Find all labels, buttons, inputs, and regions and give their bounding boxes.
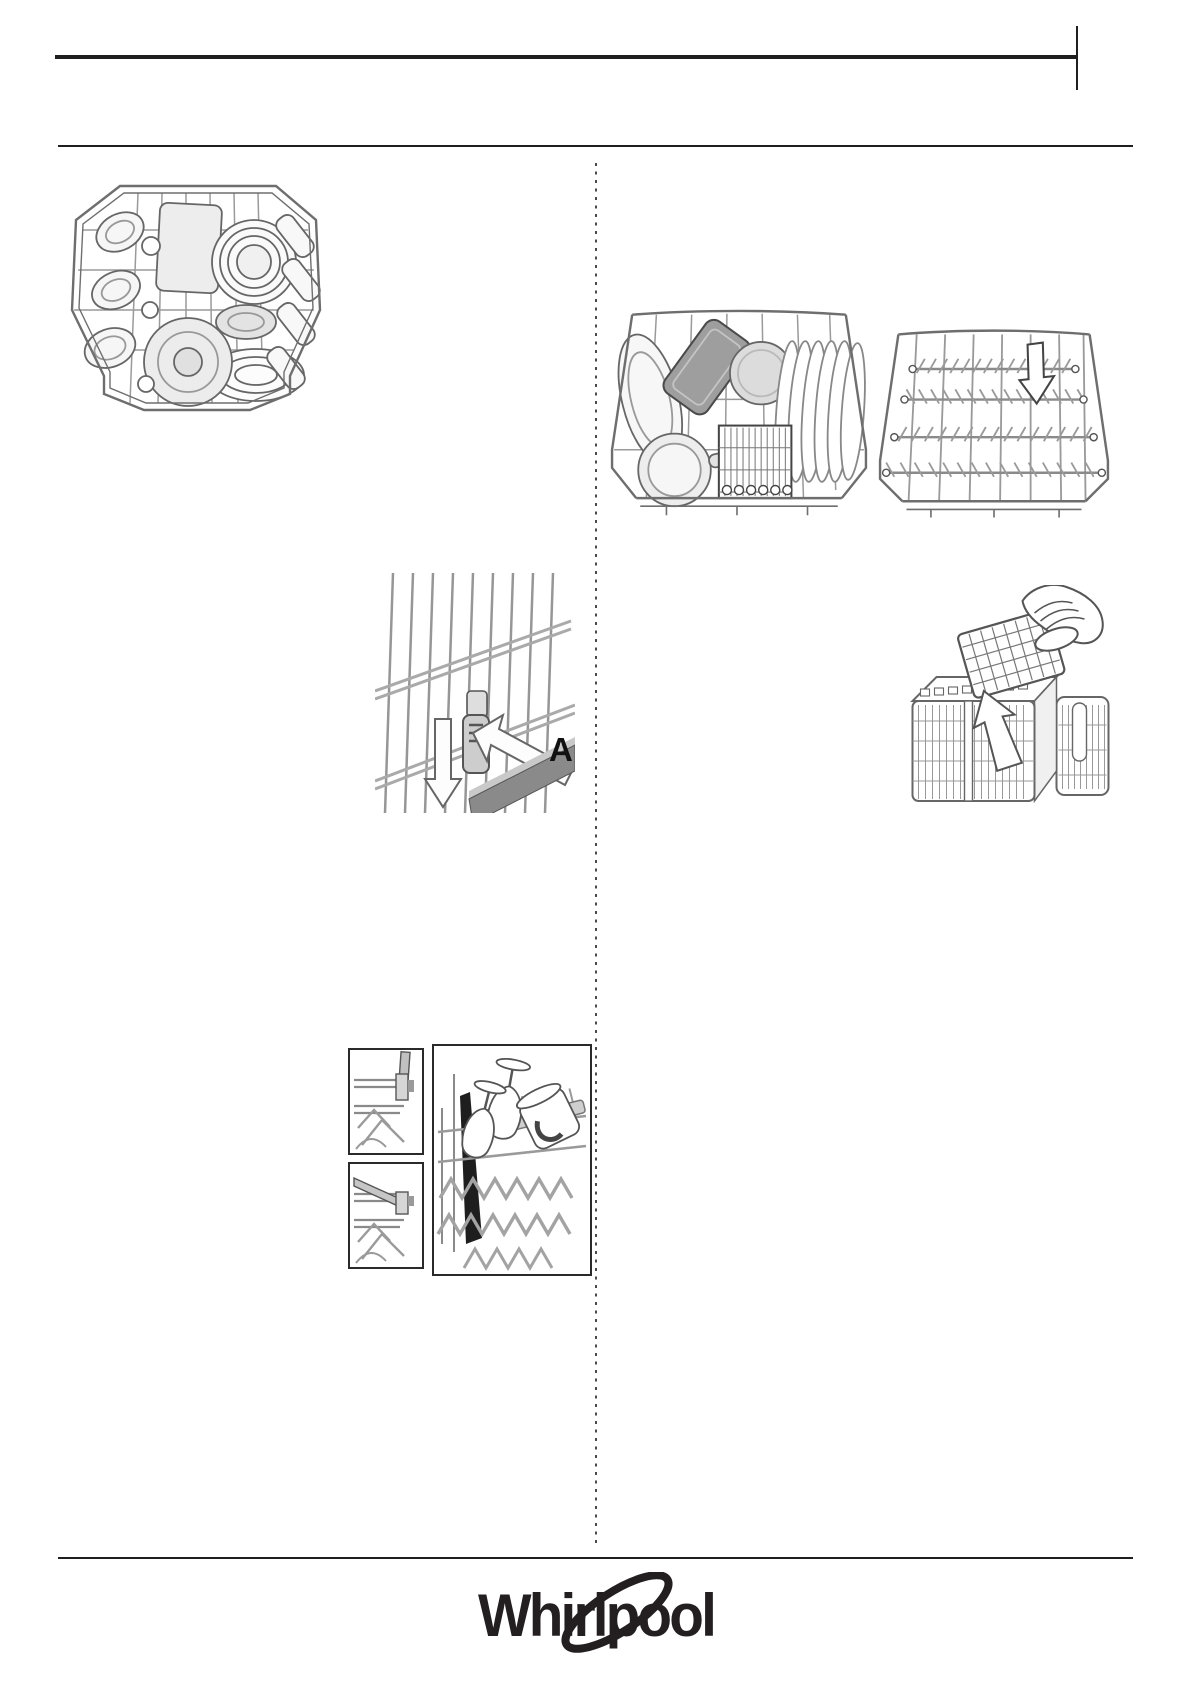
whirlpool-logo-icon: Whirlpool — [477, 1572, 717, 1660]
flap-up-illustration — [348, 1048, 424, 1155]
down-arrow-icon — [1019, 343, 1054, 404]
flap-loaded-illustration — [432, 1044, 592, 1276]
lower-rack-empty-icon — [876, 320, 1112, 534]
flap-down-illustration — [348, 1162, 424, 1269]
cutlery-basket-icon — [905, 585, 1113, 815]
manual-page: A — [0, 0, 1191, 1684]
whirlpool-logo: Whirlpool — [477, 1572, 717, 1660]
column-divider-dotted — [595, 163, 597, 1548]
upper-rack-top-view-illustration — [58, 170, 330, 423]
header-rule-thick — [55, 55, 1078, 59]
cutlery-basket-illustration — [905, 585, 1113, 815]
position-a-label: A — [549, 733, 573, 766]
lower-rack-loaded-icon — [606, 298, 872, 536]
header-rule-thin — [58, 145, 1133, 147]
lower-rack-empty-illustration — [876, 320, 1112, 534]
flap-loaded-icon — [434, 1046, 590, 1274]
lower-rack-loaded-illustration — [606, 298, 872, 536]
upper-rack-icon — [58, 170, 330, 423]
hand-icon — [1023, 585, 1103, 655]
down-arrow-icon — [425, 719, 461, 807]
flap-down-icon — [350, 1164, 422, 1267]
whirlpool-wordmark: Whirlpool — [478, 1582, 714, 1649]
rack-height-adjust-illustration — [375, 573, 575, 813]
flap-up-icon — [350, 1050, 422, 1153]
mug-icon — [514, 1079, 582, 1151]
rack-height-adjust-icon — [375, 573, 575, 813]
footer-rule — [58, 1557, 1133, 1559]
header-rule-vertical — [1076, 26, 1078, 90]
